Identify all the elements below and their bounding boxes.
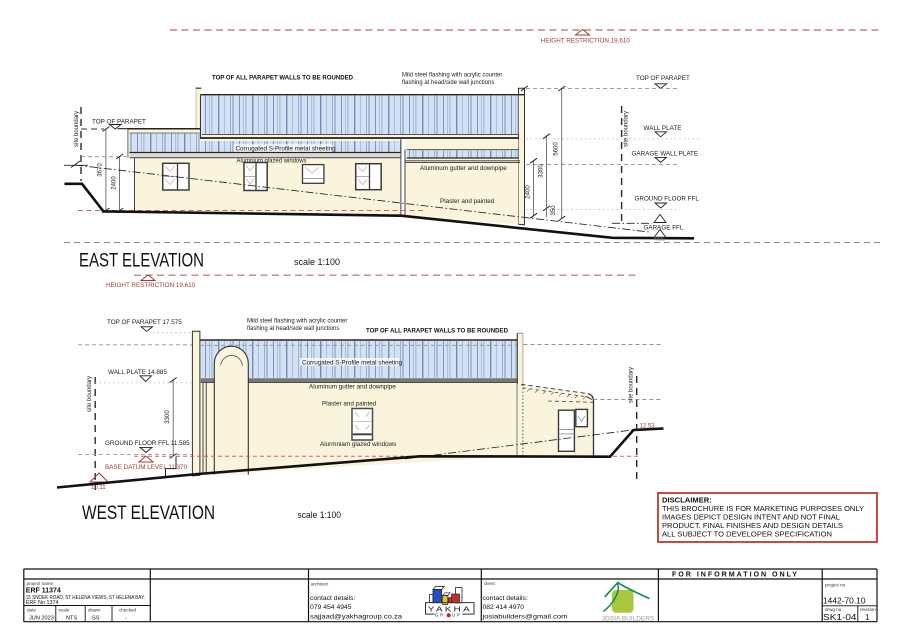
svg-text:Plaster and painted: Plaster and painted <box>440 198 495 205</box>
svg-text:GR: GR <box>435 612 445 617</box>
svg-text:TOP OF PARAPET: TOP OF PARAPET <box>636 75 690 82</box>
svg-text:UP: UP <box>452 612 462 617</box>
svg-text:Mild steel flashing with acryl: Mild steel flashing with acrylic counter <box>247 319 347 325</box>
svg-text:Alurmniam glazed windows: Alurmniam glazed windows <box>320 441 396 448</box>
svg-text:Corrugated S-Profile metal she: Corrugated S-Profile metal sheeting <box>236 146 337 153</box>
svg-text:revision: revision <box>860 607 876 612</box>
svg-text:Plaster and painted: Plaster and painted <box>322 400 377 407</box>
svg-text:flashing at head/side wall jun: flashing at head/side wall junctions <box>247 326 339 332</box>
svg-text:client: client <box>484 581 495 586</box>
svg-text:project no: project no <box>825 583 846 588</box>
svg-text:site boundary: site boundary <box>629 367 635 403</box>
svg-text:1: 1 <box>865 613 870 622</box>
svg-text:SK1-04: SK1-04 <box>823 613 857 622</box>
svg-text:10.11: 10.11 <box>91 485 106 491</box>
svg-text:flashing at head/side wall jun: flashing at head/side wall junctions <box>402 80 494 86</box>
svg-text:site boundary: site boundary <box>74 111 80 147</box>
svg-text:1442-70.10: 1442-70.10 <box>823 597 866 606</box>
svg-text:sajjaad@yakhagroup.co.za: sajjaad@yakhagroup.co.za <box>310 613 402 620</box>
svg-text:FOR INFORMATION ONLY: FOR INFORMATION ONLY <box>672 569 799 578</box>
svg-text:HEIGHT RESTRICTION 19.610: HEIGHT RESTRICTION 19.610 <box>106 282 196 289</box>
svg-text:scale 1:100: scale 1:100 <box>298 510 342 520</box>
svg-text:scale 1:100: scale 1:100 <box>294 257 340 267</box>
svg-text:Corrugated S-Profile metal she: Corrugated S-Profile metal sheeting <box>302 360 403 367</box>
svg-text:NTS: NTS <box>66 616 77 622</box>
svg-text:NGL: NGL <box>654 237 665 243</box>
svg-text:Aluminum gutter and downpipe: Aluminum gutter and downpipe <box>309 383 396 390</box>
svg-text:GARAGE WALL PLATE: GARAGE WALL PLATE <box>632 150 699 157</box>
svg-text:GROUND FLOOR FFL: GROUND FLOOR FFL <box>635 195 700 202</box>
svg-text:contact details:: contact details: <box>310 595 355 602</box>
svg-text:date: date <box>27 608 36 613</box>
svg-text:079 454 4945: 079 454 4945 <box>310 604 352 611</box>
svg-text:GARAGE FFL: GARAGE FFL <box>644 225 684 232</box>
svg-text:ERF 11374: ERF 11374 <box>26 588 61 595</box>
svg-text:JOSIA BUILDERS: JOSIA BUILDERS <box>602 615 655 622</box>
svg-text:2400: 2400 <box>526 185 532 199</box>
svg-text:HEIGHT RESTRICTION 19.610: HEIGHT RESTRICTION 19.610 <box>541 38 631 45</box>
svg-text:ALL SUBJECT TO DEVELOPER SPECI: ALL SUBJECT TO DEVELOPER SPECIFICATION <box>662 530 832 539</box>
svg-text:WALL PLATE: WALL PLATE <box>644 125 682 132</box>
svg-text:5600: 5600 <box>554 142 560 156</box>
svg-text:GROUND FLOOR FFL 11.585: GROUND FLOOR FFL 11.585 <box>105 440 190 447</box>
svg-text:-: - <box>125 616 127 622</box>
svg-text:3300: 3300 <box>165 410 171 424</box>
svg-text:checked: checked <box>119 608 137 613</box>
svg-text:350: 350 <box>551 205 557 216</box>
svg-text:EAST ELEVATION: EAST ELEVATION <box>79 251 204 272</box>
svg-text:contact details:: contact details: <box>483 595 528 602</box>
svg-text:site boundary: site boundary <box>624 111 630 147</box>
svg-text:082 414 4970: 082 414 4970 <box>483 604 525 611</box>
svg-text:2400: 2400 <box>112 176 118 190</box>
svg-text:TOP OF ALL PARAPET WALLS TO BE: TOP OF ALL PARAPET WALLS TO BE ROUNDED <box>212 75 353 82</box>
svg-text:BASE DATUM LEVEL 11.370: BASE DATUM LEVEL 11.370 <box>105 464 188 471</box>
svg-text:site boundary: site boundary <box>87 376 93 412</box>
svg-text:Mild steel flashing with acryl: Mild steel flashing with acrylic counter <box>402 73 502 79</box>
svg-text:architect: architect <box>311 582 329 587</box>
svg-text:TOP OF PARAPET 17.575: TOP OF PARAPET 17.575 <box>107 319 182 326</box>
svg-text:SS: SS <box>92 616 100 622</box>
svg-text:JUN 2023: JUN 2023 <box>29 616 54 622</box>
svg-text:WEST ELEVATION: WEST ELEVATION <box>82 503 215 524</box>
svg-text:drawn: drawn <box>88 608 101 613</box>
svg-text:3300: 3300 <box>539 164 545 178</box>
svg-text:Aluminum gutter and downpipe: Aluminum gutter and downpipe <box>420 165 507 172</box>
svg-text:josiabuilders@gmail.com: josiabuilders@gmail.com <box>481 613 567 620</box>
svg-text:TOP OF ALL PARAPET WALLS TO BE: TOP OF ALL PARAPET WALLS TO BE ROUNDED <box>366 328 508 335</box>
svg-text:drwg no: drwg no <box>825 607 842 612</box>
svg-text:3670: 3670 <box>98 163 104 177</box>
svg-text:project name: project name <box>27 581 54 586</box>
svg-text:scale: scale <box>59 608 70 613</box>
svg-text:WALL PLATE 14.885: WALL PLATE 14.885 <box>108 369 167 376</box>
